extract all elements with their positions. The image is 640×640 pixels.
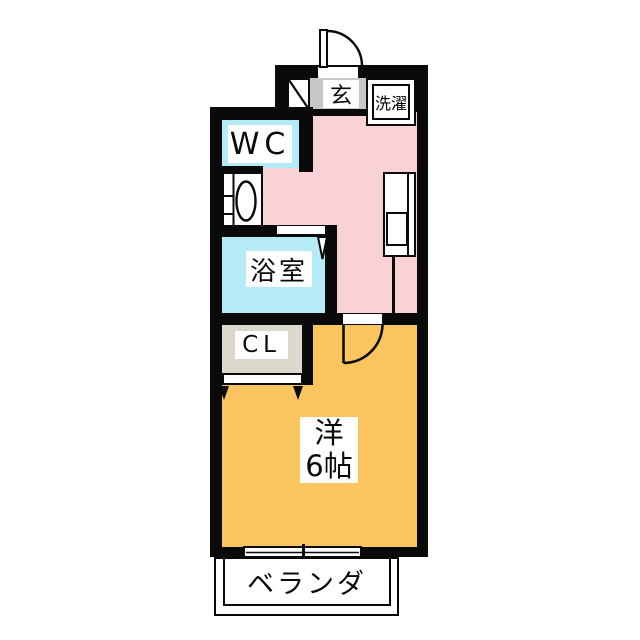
main-room-label-line1: 洋 bbox=[314, 417, 343, 450]
entrance-label: 玄 bbox=[330, 78, 352, 110]
wall-bathroom-right bbox=[325, 225, 337, 325]
kitchen-sink bbox=[386, 212, 408, 246]
closet-label-box: CL bbox=[235, 331, 288, 359]
toilet-alcove bbox=[222, 172, 263, 227]
entry-door-leaf bbox=[319, 29, 328, 68]
wall-wc-right bbox=[299, 107, 313, 172]
main-room-door-opening bbox=[343, 314, 382, 324]
closet-label: CL bbox=[242, 332, 281, 358]
entry-door-arc-icon bbox=[327, 31, 362, 66]
wall-below-wc bbox=[222, 166, 263, 173]
wall-closet-right bbox=[302, 325, 313, 385]
closet-door-panel bbox=[222, 373, 303, 385]
veranda-label: ベランダ bbox=[247, 562, 367, 601]
main-room-label-box: 洋 6帖 bbox=[300, 417, 358, 483]
wc-label-box: WC bbox=[228, 125, 292, 163]
laundry-label: 洗濯 bbox=[375, 90, 407, 114]
washer-pan-inner: 洗濯 bbox=[372, 84, 410, 120]
wc-label: WC bbox=[230, 127, 291, 162]
bath-door-opening bbox=[277, 226, 325, 234]
floorplan-canvas: 洗濯 WC 浴室 CL 玄 洋 6帖 ベランダ bbox=[0, 0, 640, 640]
wall-wc-top bbox=[210, 107, 313, 120]
bathroom-label-box: 浴室 bbox=[246, 251, 312, 287]
entry-door-opening bbox=[318, 67, 358, 78]
kitchen-counter-divider-line bbox=[392, 257, 395, 313]
bathroom-label: 浴室 bbox=[250, 251, 308, 288]
entrance-label-box: 玄 bbox=[323, 80, 359, 108]
wall-middle-horizontal bbox=[210, 313, 428, 325]
main-room-label-line2: 6帖 bbox=[305, 450, 352, 483]
veranda-label-box: ベランダ bbox=[225, 560, 389, 602]
